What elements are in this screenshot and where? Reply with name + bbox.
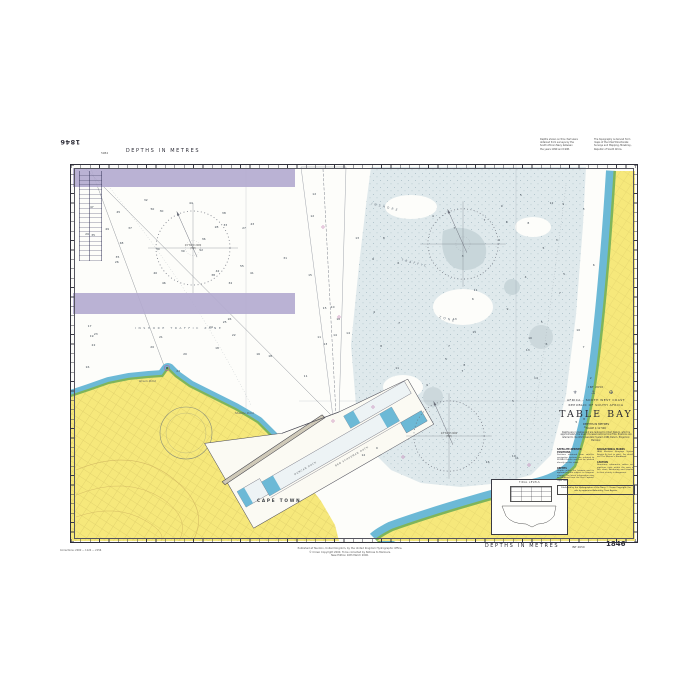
sounding: 6 (397, 261, 399, 265)
sounding: 33 (223, 223, 227, 227)
sounding: 14 (346, 331, 350, 335)
border-ticks-left (71, 165, 74, 542)
int-reference: INT 2650 (557, 386, 635, 389)
crest-icons: ⚜ ⚓ ✠ (557, 390, 635, 396)
sounding: 28 (215, 225, 219, 229)
border-ticks-top (71, 165, 637, 168)
sounding: 8 (383, 236, 385, 240)
sounding: 30 (156, 247, 160, 251)
sounding: 7 (398, 321, 400, 325)
sounding: 5 (541, 320, 543, 324)
title-notes: SATELLITE-DERIVED POSITIONS Positions ob… (557, 446, 635, 482)
note-body: Depths within the harbour and its approa… (557, 470, 594, 483)
sounding: 9 (506, 307, 508, 311)
sounding: 9 (562, 202, 564, 206)
sounding: 3 (583, 207, 585, 211)
sounding: 10 (528, 336, 532, 340)
sounding: 3 (462, 254, 464, 258)
sounding: 20 (183, 352, 187, 356)
border-ticks-right (634, 165, 637, 542)
sounding: 2 (590, 376, 592, 380)
sounding: 38 (211, 273, 215, 277)
sounding: 24 (176, 369, 180, 373)
sounding: 13 (526, 348, 530, 352)
sounding: 5 (512, 399, 514, 403)
sounding: 10 (576, 328, 580, 332)
sounding: 6 (545, 342, 547, 346)
sounding: 10 (336, 317, 340, 321)
nautical-chart-page: 1846 5984 DEPTHS IN METRES Depths shown … (0, 0, 700, 700)
border-ticks-bottom (71, 539, 637, 542)
title-region: AFRICA – SOUTH WEST COAST (557, 398, 635, 402)
note-body: Numerous submarine cables and pipelines … (597, 464, 634, 474)
sounding: 22 (92, 343, 96, 347)
inshore-traffic-zone-label: INSHORE TRAFFIC ZONE (135, 326, 223, 330)
sounding: 9 (426, 383, 428, 387)
title-scale-note: SCALE 1:12 500 (557, 427, 635, 430)
sounding: 17 (88, 324, 92, 328)
corrections-note: Corrections: 2000 — 1124 — 2156 (60, 549, 101, 552)
sounding: 8 (506, 220, 508, 224)
sounding: 45 (116, 210, 120, 214)
depths-legend-top: DEPTHS IN METRES (118, 148, 208, 154)
margin-note-topography: The topography is derived from maps of t… (594, 138, 644, 151)
sounding: 16 (86, 365, 90, 369)
sounding: 13 (355, 236, 359, 240)
sounding: 7 (559, 291, 561, 295)
sounding: 6 (593, 263, 595, 267)
sounding: 3 (556, 238, 558, 242)
sounding: 4 (432, 214, 434, 218)
sounding: 7 (484, 218, 486, 222)
sounding: 23 (94, 332, 98, 336)
sounding: 48 (120, 241, 124, 245)
publication-line: New Edition 16th March 2000. (180, 554, 520, 558)
sounding: 11 (395, 366, 399, 370)
sounding: 11 (317, 335, 321, 339)
sounding: 7 (448, 344, 450, 348)
magnetic-variation-west: 24°30'W 2000 (5'E) (171, 245, 215, 251)
sounding: 18 (268, 354, 272, 358)
sounding: 29 (85, 232, 89, 236)
sounding: 6 (498, 238, 500, 242)
margin-note-line: the years 1990 and 1998. (540, 148, 590, 151)
variation-change: (5'E) (427, 436, 471, 439)
sounding: 7 (453, 226, 455, 230)
sounding: 8 (380, 344, 382, 348)
sounding: 12 (310, 214, 314, 218)
sounding: 10 (331, 305, 335, 309)
publication-box: Published by the Hydrographer of the Nav… (557, 485, 635, 494)
sounding: 40 (153, 271, 157, 275)
magnetic-variation-bay: 24°30'W 2000 (5'E) (427, 433, 471, 439)
sounding: 38 (222, 211, 226, 215)
sounding: 15 (472, 330, 476, 334)
sounding: 7 (583, 345, 585, 349)
sounding: 16 (486, 460, 490, 464)
sounding: 11 (304, 374, 308, 378)
sounding: 12 (550, 201, 554, 205)
sounding: 34 (228, 281, 232, 285)
sounding: 37 (128, 226, 132, 230)
sounding: 41 (250, 271, 254, 275)
sounding: 20 (150, 345, 154, 349)
sounding: 15 (308, 273, 312, 277)
margin-note-line: Republic of South Africa. (594, 148, 644, 151)
sounding: 18 (215, 346, 219, 350)
sounding: 14 (333, 333, 337, 337)
sounding: 9 (376, 446, 378, 450)
sounding: 12 (312, 192, 316, 196)
sounding: 13 (323, 342, 327, 346)
sounding: 4 (525, 275, 527, 279)
sounding: 21 (159, 335, 163, 339)
sounding: 43 (250, 222, 254, 226)
sounding: 14 (534, 376, 538, 380)
chart-title: TABLE BAY (557, 409, 635, 420)
green-point-label: Green Point (139, 379, 156, 383)
sounding: 30 (160, 209, 164, 213)
sounding: 11 (474, 288, 478, 292)
sounding: 9 (501, 204, 503, 208)
sounding: 55 (240, 264, 244, 268)
sounding: 8 (527, 221, 529, 225)
sounding: 32 (144, 198, 148, 202)
int-reference-bottom: INT 2650 (572, 545, 585, 549)
sounding: 50 (150, 207, 154, 211)
title-depths-note: DEPTHS IN METRES (557, 422, 635, 426)
sounding: 15 (323, 306, 327, 310)
sounding: 47 (90, 205, 94, 209)
sounding: 26 (115, 260, 119, 264)
sounding: 5 (543, 246, 545, 250)
title-country: REPUBLIC OF SOUTH AFRICA (557, 403, 635, 407)
sounding: 35 (91, 233, 95, 237)
sounding: 4 (373, 310, 375, 314)
edition-small-note: 5984 (101, 151, 108, 155)
note-body: Positions obtained from satellite naviga… (557, 454, 594, 464)
sounding: 46 (162, 281, 166, 285)
variation-change: (5'E) (171, 248, 215, 251)
sounding: 12 (361, 453, 365, 457)
title-datum-paragraph: Depths are in metres and are reduced to … (557, 432, 635, 444)
sounding: 26 (228, 317, 232, 321)
mouille-point-label: Mouille Point (235, 411, 254, 415)
sounding: 11 (515, 456, 519, 460)
sounding: 42 (216, 269, 220, 273)
sounding: 19 (90, 334, 94, 338)
sounding: 6 (472, 297, 474, 301)
sounding: 5 (563, 272, 565, 276)
publication-lines: Published at Taunton, United Kingdom, by… (180, 547, 520, 558)
sounding: 44 (189, 201, 193, 205)
sounding: 36 (202, 237, 206, 241)
sounding: 5 (445, 357, 447, 361)
sounding: 49 (105, 227, 109, 231)
sounding: 6 (372, 257, 374, 261)
sounding: 22 (232, 333, 236, 337)
sounding: 7 (461, 369, 463, 373)
chart-sheet: INSHORE TRAFFIC ZONE INSHORE TRAFFIC ZON… (70, 164, 638, 543)
note-body: IALA Maritime Buoyage System Region A (r… (597, 451, 634, 459)
sounding: 27 (242, 226, 246, 230)
cape-town-label: CAPE TOWN (257, 498, 301, 503)
chart-number-top-inverted: 1846 (60, 138, 80, 146)
sounding: 8 (463, 363, 465, 367)
title-block: INT 2650 ⚜ ⚓ ✠ AFRICA – SOUTH WEST COAST… (557, 386, 635, 495)
sounding: 25 (223, 320, 227, 324)
sounding: 31 (283, 256, 287, 260)
sounding: 16 (256, 352, 260, 356)
sounding: 5 (520, 193, 522, 197)
margin-note-source: Depths shown on this chart were obtained… (540, 138, 590, 151)
inset-outline (492, 480, 567, 534)
